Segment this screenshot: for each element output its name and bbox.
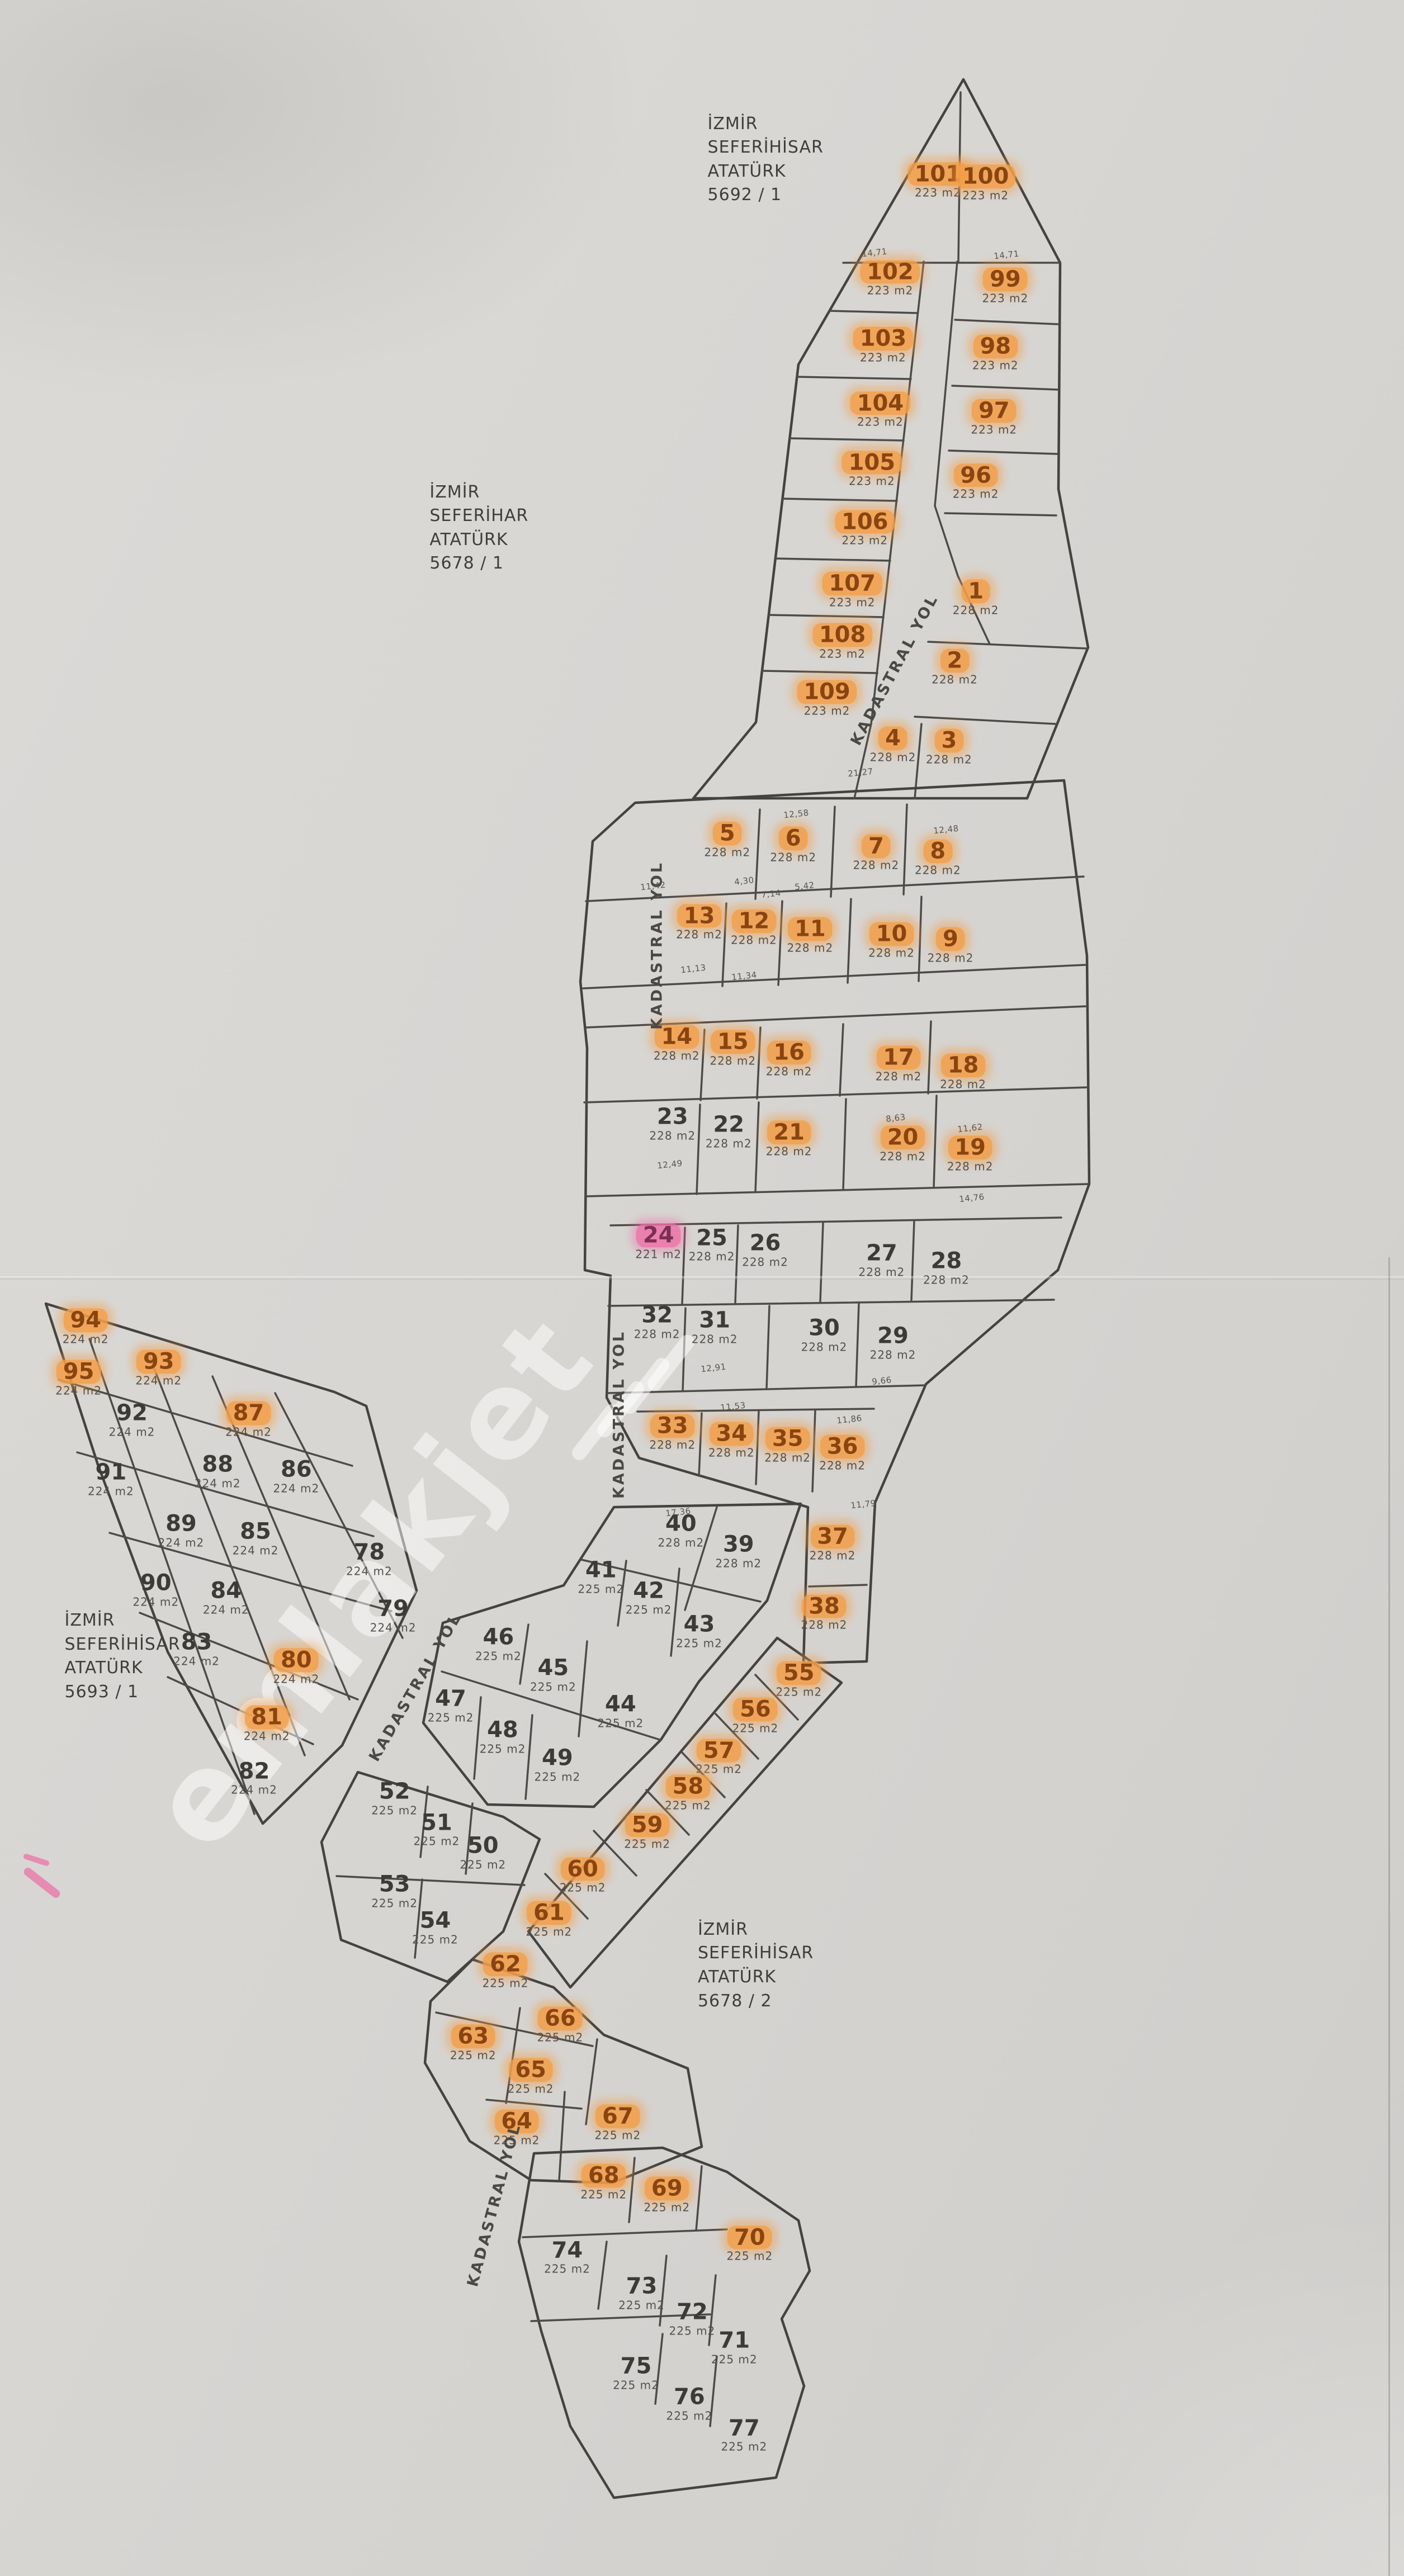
parcel-13: 13228 m2 xyxy=(676,904,722,940)
parcel-number: 26 xyxy=(743,1231,788,1255)
parcel-number: 56 xyxy=(733,1697,778,1721)
parcel-area: 223 m2 xyxy=(972,359,1019,371)
parcel-number: 13 xyxy=(677,904,722,928)
parcel-area: 228 m2 xyxy=(932,674,978,685)
parcel-number: 90 xyxy=(134,1571,178,1595)
parcel-area: 228 m2 xyxy=(715,1557,762,1569)
parcel-number: 3 xyxy=(935,729,964,753)
parcel-24: 24221 m2 xyxy=(635,1223,682,1259)
parcel-area: 228 m2 xyxy=(810,1550,856,1561)
parcel-area: 224 m2 xyxy=(109,1426,155,1437)
parcel-number: 35 xyxy=(765,1427,810,1451)
parcel-number: 76 xyxy=(667,2385,712,2409)
parcel-number: 37 xyxy=(810,1525,855,1549)
parcel-area: 228 m2 xyxy=(731,934,777,945)
parcel-number: 39 xyxy=(716,1532,761,1556)
parcel-number: 48 xyxy=(480,1718,525,1742)
parcel-98: 98223 m2 xyxy=(972,335,1019,371)
parcel-21: 21228 m2 xyxy=(766,1120,812,1157)
dimension-label: 12,49 xyxy=(656,1158,683,1171)
parcel-number: 73 xyxy=(620,2275,664,2299)
parcel-number: 74 xyxy=(545,2238,590,2262)
parcel-11: 11228 m2 xyxy=(787,917,833,953)
parcel-number: 82 xyxy=(232,1759,277,1783)
parcel-number: 27 xyxy=(859,1242,904,1266)
parcel-area: 223 m2 xyxy=(842,476,902,487)
parcel-79: 79224 m2 xyxy=(370,1597,417,1633)
dimension-label: 8,63 xyxy=(885,1112,906,1124)
parcel-number: 88 xyxy=(195,1453,240,1477)
parcel-87: 87224 m2 xyxy=(225,1401,272,1437)
parcel-49: 49225 m2 xyxy=(534,1746,580,1783)
parcel-area: 224 m2 xyxy=(370,1622,417,1633)
parcel-number: 19 xyxy=(948,1136,992,1160)
dimension-label: 11,53 xyxy=(720,1400,746,1413)
parcel-69: 69225 m2 xyxy=(644,2176,690,2213)
parcel-number: 67 xyxy=(595,2104,640,2128)
parcel-number: 68 xyxy=(582,2163,626,2187)
parcel-number: 33 xyxy=(650,1414,695,1438)
parcel-77: 77225 m2 xyxy=(721,2416,767,2452)
parcel-number: 28 xyxy=(924,1249,969,1273)
parcel-75: 75225 m2 xyxy=(613,2354,659,2390)
parcel-84: 84224 m2 xyxy=(203,1579,249,1615)
parcel-81: 81224 m2 xyxy=(244,1705,290,1741)
parcel-area: 228 m2 xyxy=(870,751,916,763)
parcel-number: 44 xyxy=(598,1692,643,1716)
dimension-label: 9,66 xyxy=(871,1375,892,1387)
parcel-number: 45 xyxy=(531,1656,575,1680)
parcel-area: 228 m2 xyxy=(634,1328,680,1339)
parcel-72: 72225 m2 xyxy=(669,2300,716,2337)
parcel-number: 83 xyxy=(174,1631,219,1655)
dimension-label: 12,48 xyxy=(933,823,959,836)
parcel-number: 86 xyxy=(274,1458,319,1482)
parcel-35: 35228 m2 xyxy=(764,1427,811,1463)
parcel-number: 75 xyxy=(614,2354,659,2378)
parcel-number: 47 xyxy=(428,1687,473,1711)
dimension-label: 14,71 xyxy=(862,246,888,259)
parcel-105: 105223 m2 xyxy=(842,451,902,487)
parcel-area: 225 m2 xyxy=(644,2201,690,2213)
parcel-area: 223 m2 xyxy=(835,535,895,546)
dimension-label: 11,34 xyxy=(731,970,757,983)
parcel-area: 228 m2 xyxy=(704,846,750,858)
parcel-number: 18 xyxy=(941,1053,986,1077)
parcel-area: 225 m2 xyxy=(618,2299,665,2310)
parcel-106: 106223 m2 xyxy=(835,510,895,546)
parcel-area: 224 m2 xyxy=(346,1565,393,1576)
parcel-104: 104223 m2 xyxy=(850,391,911,428)
parcel-number: 4 xyxy=(878,726,907,750)
parcel-10: 10228 m2 xyxy=(868,922,915,958)
dimension-label: 12,91 xyxy=(700,1362,726,1375)
parcel-number: 89 xyxy=(159,1512,204,1536)
parcel-number: 60 xyxy=(560,1857,605,1881)
parcel-39: 39228 m2 xyxy=(715,1532,762,1569)
parcel-48: 48225 m2 xyxy=(480,1718,526,1754)
parcel-area: 228 m2 xyxy=(915,865,961,876)
parcel-number: 6 xyxy=(779,827,808,851)
parcel-area: 224 m2 xyxy=(244,1730,290,1741)
parcel-area: 223 m2 xyxy=(956,190,1016,201)
parcel-area: 228 m2 xyxy=(649,1439,696,1450)
parcel-area: 228 m2 xyxy=(870,1349,916,1360)
dimension-label: 5,42 xyxy=(794,880,815,892)
parcel-area: 221 m2 xyxy=(635,1248,682,1259)
parcel-number: 21 xyxy=(767,1120,811,1144)
parcel-80: 80224 m2 xyxy=(273,1649,319,1685)
parcel-area: 225 m2 xyxy=(371,1897,418,1909)
parcel-number: 109 xyxy=(797,680,857,704)
parcel-area: 225 m2 xyxy=(450,2049,497,2061)
parcel-36: 36228 m2 xyxy=(819,1434,866,1471)
parcel-94: 94224 m2 xyxy=(63,1309,109,1345)
dimension-label: 11,13 xyxy=(680,962,707,975)
parcel-number: 95 xyxy=(56,1360,101,1384)
parcel-34: 34228 m2 xyxy=(708,1422,755,1458)
parcel-5: 5228 m2 xyxy=(704,822,750,858)
parcel-area: 228 m2 xyxy=(801,1620,848,1631)
parcel-area: 228 m2 xyxy=(923,1274,970,1285)
parcel-number: 23 xyxy=(650,1105,695,1129)
parcel-area: 223 m2 xyxy=(797,705,857,716)
parcel-area: 228 m2 xyxy=(706,1138,752,1149)
parcel-area: 223 m2 xyxy=(982,293,1029,304)
parcel-number: 49 xyxy=(535,1746,580,1770)
parcel-60: 60225 m2 xyxy=(560,1857,606,1893)
parcel-area: 228 m2 xyxy=(649,1130,696,1141)
parcel-number: 93 xyxy=(136,1349,181,1374)
parcel-area: 228 m2 xyxy=(787,942,833,953)
parcel-number: 8 xyxy=(923,840,952,864)
parcel-47: 47225 m2 xyxy=(428,1687,474,1723)
parcel-30: 30228 m2 xyxy=(801,1316,848,1352)
parcel-number: 29 xyxy=(871,1324,915,1348)
parcel-number: 105 xyxy=(842,451,902,475)
parcel-area: 228 m2 xyxy=(876,1071,922,1082)
parcel-37: 37228 m2 xyxy=(810,1525,856,1561)
dimension-label: 14,76 xyxy=(958,1191,985,1204)
parcel-103: 103223 m2 xyxy=(853,327,914,363)
parcel-area: 224 m2 xyxy=(158,1537,205,1548)
parcel-number: 32 xyxy=(635,1303,679,1327)
parcel-45: 45225 m2 xyxy=(530,1656,576,1693)
parcel-area: 224 m2 xyxy=(133,1596,179,1607)
parcel-area: 223 m2 xyxy=(953,489,999,500)
parcel-area: 223 m2 xyxy=(971,424,1017,435)
parcel-29: 29228 m2 xyxy=(870,1324,916,1360)
parcel-number: 100 xyxy=(956,165,1016,189)
parcel-area: 225 m2 xyxy=(626,1604,672,1615)
parcel-number: 15 xyxy=(711,1030,755,1054)
parcel-22: 22228 m2 xyxy=(706,1112,752,1149)
parcel-area: 225 m2 xyxy=(732,1722,779,1734)
parcel-54: 54225 m2 xyxy=(412,1909,458,1945)
parcel-area: 228 m2 xyxy=(710,1055,756,1067)
parcel-area: 225 m2 xyxy=(414,1836,460,1847)
parcel-number: 2 xyxy=(940,649,970,673)
parcel-33: 33228 m2 xyxy=(649,1414,696,1450)
parcel-area: 228 m2 xyxy=(853,859,899,870)
parcel-area: 223 m2 xyxy=(853,352,914,363)
parcel-area: 225 m2 xyxy=(460,1859,506,1870)
parcel-area: 228 m2 xyxy=(868,947,915,958)
parcel-area: 225 m2 xyxy=(412,1934,458,1945)
parcel-42: 42225 m2 xyxy=(626,1579,672,1615)
parcel-number: 24 xyxy=(636,1223,681,1247)
dimension-label: 11,62 xyxy=(957,1122,984,1135)
parcel-area: 225 m2 xyxy=(669,2325,716,2336)
parcel-91: 91224 m2 xyxy=(88,1460,134,1497)
parcel-number: 51 xyxy=(414,1811,459,1835)
parcel-area: 224 m2 xyxy=(135,1375,182,1386)
road-label-kadastral-yol: KADASTRAL YOL xyxy=(611,1330,628,1499)
parcel-area: 228 m2 xyxy=(764,1452,811,1463)
parcel-53: 53225 m2 xyxy=(371,1873,418,1909)
parcel-46: 46225 m2 xyxy=(475,1625,522,1661)
parcel-area: 225 m2 xyxy=(624,1838,670,1849)
parcel-area: 225 m2 xyxy=(537,2032,584,2043)
parcel-number: 79 xyxy=(371,1597,415,1621)
parcel-58: 58225 m2 xyxy=(665,1775,711,1811)
parcel-19: 19228 m2 xyxy=(947,1136,994,1172)
parcel-number: 70 xyxy=(727,2225,772,2250)
parcel-number: 78 xyxy=(347,1540,392,1564)
parcel-number: 31 xyxy=(692,1309,737,1333)
parcel-area: 225 m2 xyxy=(665,1800,711,1811)
parcel-6: 6228 m2 xyxy=(770,827,816,863)
parcel-area: 228 m2 xyxy=(689,1251,735,1262)
parcel-74: 74225 m2 xyxy=(544,2238,590,2275)
parcel-number: 58 xyxy=(666,1775,711,1799)
parcel-number: 106 xyxy=(835,510,895,534)
parcel-number: 36 xyxy=(820,1434,865,1459)
parcel-area: 228 m2 xyxy=(947,1161,994,1172)
dimension-label: 11,79 xyxy=(850,1498,877,1511)
parcel-number: 5 xyxy=(713,822,742,846)
parcel-90: 90224 m2 xyxy=(133,1571,179,1608)
parcel-50: 50225 m2 xyxy=(460,1834,506,1871)
parcel-number: 61 xyxy=(527,1901,571,1925)
parcel-number: 57 xyxy=(697,1739,741,1763)
dimension-label: 12,58 xyxy=(783,808,809,821)
dimension-label: 7,14 xyxy=(760,888,781,900)
parcel-area: 225 m2 xyxy=(530,1681,576,1692)
parcel-area: 228 m2 xyxy=(859,1267,905,1278)
parcel-95: 95224 m2 xyxy=(55,1360,102,1396)
parcel-number: 102 xyxy=(860,260,920,284)
parcel-area: 228 m2 xyxy=(953,604,999,615)
parcel-number: 84 xyxy=(204,1579,248,1603)
parcel-area: 225 m2 xyxy=(776,1687,822,1698)
parcel-area: 225 m2 xyxy=(613,2379,659,2390)
parcel-area: 228 m2 xyxy=(880,1150,926,1162)
parcel-7: 7228 m2 xyxy=(853,835,899,871)
parcel-68: 68225 m2 xyxy=(580,2163,627,2200)
parcel-area: 225 m2 xyxy=(544,2264,590,2275)
dimension-label: 4,30 xyxy=(734,875,754,887)
parcel-number: 50 xyxy=(461,1834,505,1858)
region-label-block-5678-1: İZMİR SEFERİHAR ATATÜRK 5678 / 1 xyxy=(429,480,528,575)
parcel-area: 228 m2 xyxy=(708,1447,755,1458)
parcel-15: 15228 m2 xyxy=(710,1030,756,1067)
parcel-number: 71 xyxy=(712,2328,757,2352)
parcel-number: 11 xyxy=(788,917,833,941)
parcel-area: 225 m2 xyxy=(676,1637,722,1649)
parcel-59: 59225 m2 xyxy=(624,1813,670,1850)
parcel-62: 62225 m2 xyxy=(483,1953,529,1989)
parcel-number: 92 xyxy=(110,1401,154,1425)
parcel-2: 2228 m2 xyxy=(932,649,978,685)
parcel-area: 225 m2 xyxy=(526,1926,572,1937)
parcel-26: 26228 m2 xyxy=(742,1231,788,1267)
parcel-86: 86224 m2 xyxy=(273,1458,319,1494)
map-labels-layer: 101223 m2100223 m2102223 m299223 m210322… xyxy=(0,0,1404,2576)
parcel-25: 25228 m2 xyxy=(689,1226,735,1262)
parcel-16: 16228 m2 xyxy=(766,1040,812,1077)
parcel-88: 88224 m2 xyxy=(195,1453,241,1489)
parcel-area: 228 m2 xyxy=(928,952,974,963)
parcel-70: 70225 m2 xyxy=(726,2225,773,2262)
parcel-63: 63225 m2 xyxy=(450,2025,497,2061)
parcel-number: 108 xyxy=(812,623,873,647)
parcel-area: 225 m2 xyxy=(726,2251,773,2262)
parcel-area: 225 m2 xyxy=(594,2129,641,2141)
parcel-area: 228 m2 xyxy=(658,1537,704,1548)
parcel-number: 16 xyxy=(767,1040,811,1064)
parcel-area: 225 m2 xyxy=(475,1650,522,1661)
parcel-93: 93224 m2 xyxy=(135,1349,182,1386)
parcel-number: 66 xyxy=(538,2006,583,2030)
parcel-number: 53 xyxy=(372,1873,417,1897)
parcel-17: 17228 m2 xyxy=(876,1046,922,1082)
parcel-65: 65225 m2 xyxy=(508,2058,554,2094)
parcel-area: 224 m2 xyxy=(203,1604,249,1615)
parcel-82: 82224 m2 xyxy=(231,1759,277,1796)
parcel-area: 225 m2 xyxy=(483,1977,529,1988)
parcel-area: 224 m2 xyxy=(233,1545,279,1556)
parcel-area: 225 m2 xyxy=(711,2354,758,2365)
parcel-3: 3228 m2 xyxy=(926,729,972,765)
parcel-67: 67225 m2 xyxy=(594,2104,641,2141)
parcel-number: 77 xyxy=(722,2416,767,2440)
parcel-27: 27228 m2 xyxy=(859,1242,905,1278)
parcel-number: 104 xyxy=(850,391,911,415)
parcel-area: 224 m2 xyxy=(88,1485,134,1497)
parcel-18: 18228 m2 xyxy=(940,1053,986,1090)
parcel-number: 94 xyxy=(63,1309,108,1333)
parcel-area: 228 m2 xyxy=(654,1050,700,1061)
parcel-56: 56225 m2 xyxy=(732,1697,779,1734)
dimension-label: 14,71 xyxy=(994,249,1020,262)
parcel-109: 109223 m2 xyxy=(797,680,857,716)
parcel-61: 61225 m2 xyxy=(526,1901,572,1937)
parcel-number: 81 xyxy=(244,1705,289,1729)
parcel-number: 107 xyxy=(822,572,882,596)
parcel-1: 1228 m2 xyxy=(953,579,999,615)
parcel-44: 44225 m2 xyxy=(597,1692,644,1729)
parcel-area: 225 m2 xyxy=(508,2083,554,2094)
parcel-area: 224 m2 xyxy=(225,1426,272,1437)
parcel-85: 85224 m2 xyxy=(233,1519,279,1556)
parcel-96: 96223 m2 xyxy=(953,463,999,500)
parcel-78: 78224 m2 xyxy=(346,1540,393,1576)
parcel-number: 17 xyxy=(876,1046,921,1070)
parcel-number: 97 xyxy=(972,399,1017,423)
parcel-number: 42 xyxy=(626,1579,671,1603)
parcel-area: 224 m2 xyxy=(273,1483,319,1494)
parcel-area: 228 m2 xyxy=(692,1333,738,1344)
parcel-89: 89224 m2 xyxy=(158,1512,205,1549)
parcel-52: 52225 m2 xyxy=(371,1780,418,1816)
parcel-area: 225 m2 xyxy=(721,2441,767,2452)
parcel-number: 46 xyxy=(476,1625,521,1649)
parcel-57: 57225 m2 xyxy=(696,1739,742,1775)
parcel-51: 51225 m2 xyxy=(414,1811,460,1847)
parcel-40: 40228 m2 xyxy=(658,1512,704,1549)
parcel-area: 228 m2 xyxy=(801,1341,848,1352)
parcel-area: 228 m2 xyxy=(676,929,722,940)
parcel-number: 69 xyxy=(645,2176,689,2200)
parcel-number: 25 xyxy=(689,1226,734,1250)
region-label-block-5692-1: İZMİR SEFERİHİSAR ATATÜRK 5692 / 1 xyxy=(708,112,824,207)
parcel-9: 9228 m2 xyxy=(928,927,974,964)
parcel-number: 30 xyxy=(802,1316,847,1340)
parcel-number: 99 xyxy=(983,268,1028,292)
parcel-number: 52 xyxy=(372,1780,417,1804)
parcel-number: 87 xyxy=(226,1401,271,1425)
parcel-97: 97223 m2 xyxy=(971,399,1017,435)
parcel-number: 96 xyxy=(953,463,998,487)
parcel-area: 225 m2 xyxy=(371,1805,418,1816)
parcel-41: 41225 m2 xyxy=(578,1559,624,1595)
parcel-number: 12 xyxy=(732,909,777,933)
parcel-number: 59 xyxy=(625,1813,670,1838)
parcel-number: 80 xyxy=(274,1649,319,1673)
parcel-area: 224 m2 xyxy=(63,1333,109,1344)
parcel-number: 91 xyxy=(89,1460,134,1484)
parcel-area: 225 m2 xyxy=(480,1743,526,1754)
parcel-number: 22 xyxy=(706,1112,751,1137)
parcel-number: 7 xyxy=(862,835,891,859)
parcel-55: 55225 m2 xyxy=(776,1661,822,1698)
parcel-area: 224 m2 xyxy=(273,1674,319,1685)
parcel-area: 224 m2 xyxy=(231,1784,277,1796)
parcel-area: 225 m2 xyxy=(578,1583,624,1594)
parcel-number: 85 xyxy=(233,1519,278,1543)
parcel-8: 8228 m2 xyxy=(915,840,961,876)
parcel-area: 225 m2 xyxy=(580,2189,627,2200)
parcel-area: 223 m2 xyxy=(812,648,873,660)
parcel-area: 224 m2 xyxy=(195,1478,241,1489)
parcel-number: 10 xyxy=(869,922,914,946)
parcel-32: 32228 m2 xyxy=(634,1303,680,1339)
dimension-label: 21,27 xyxy=(848,766,874,779)
parcel-76: 76225 m2 xyxy=(666,2385,713,2422)
parcel-number: 98 xyxy=(973,335,1018,359)
parcel-20: 20228 m2 xyxy=(880,1125,926,1162)
parcel-area: 223 m2 xyxy=(860,285,920,296)
parcel-area: 228 m2 xyxy=(766,1066,812,1077)
parcel-area: 225 m2 xyxy=(597,1717,644,1729)
parcel-number: 41 xyxy=(579,1559,623,1583)
parcel-92: 92224 m2 xyxy=(109,1401,155,1437)
parcel-area: 223 m2 xyxy=(822,596,882,608)
parcel-area: 228 m2 xyxy=(770,852,816,863)
parcel-area: 223 m2 xyxy=(850,416,911,428)
parcel-area: 225 m2 xyxy=(534,1772,580,1783)
